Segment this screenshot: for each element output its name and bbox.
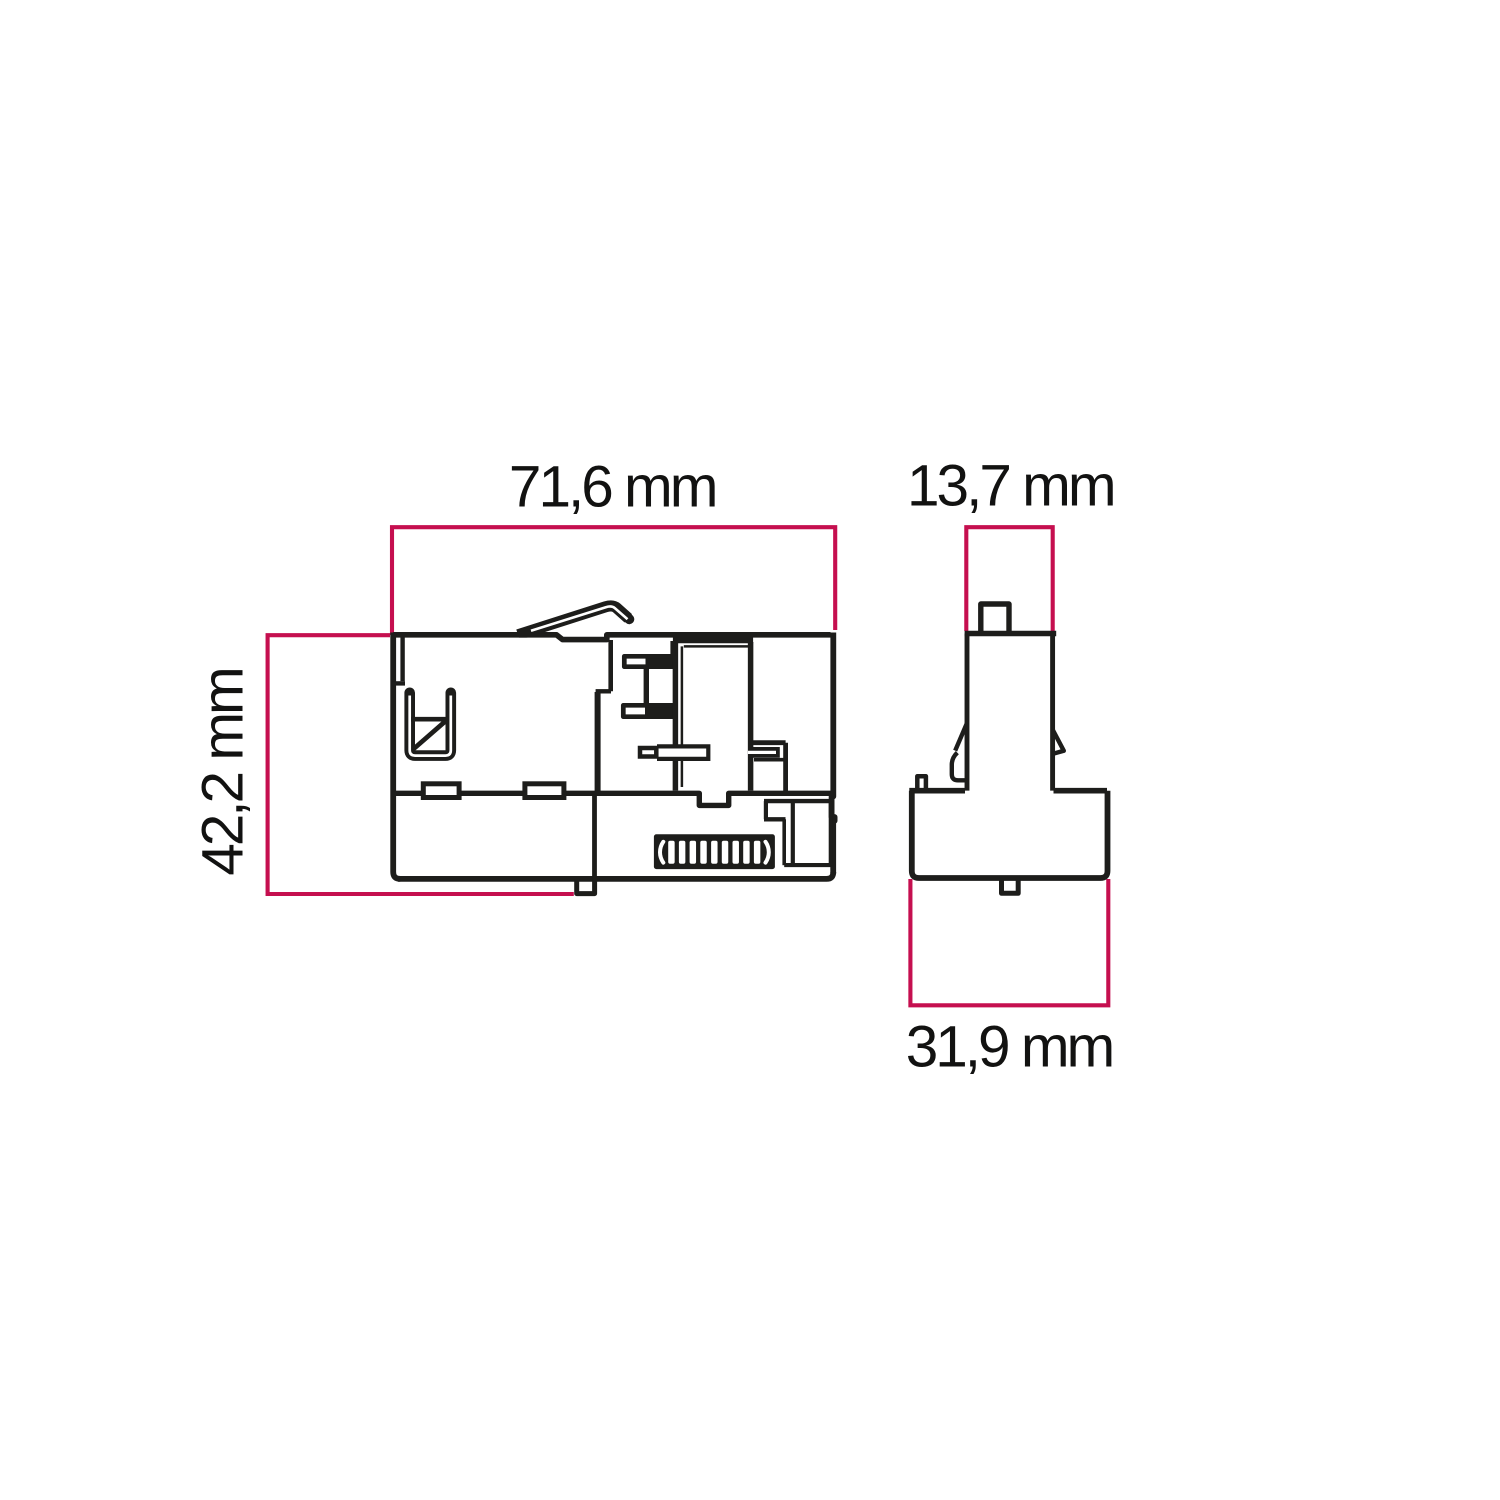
svg-text:31,9 mm: 31,9 mm	[906, 1015, 1113, 1080]
svg-text:13,7 mm: 13,7 mm	[907, 454, 1114, 519]
svg-text:42,2 mm: 42,2 mm	[191, 669, 256, 876]
svg-text:71,6 mm: 71,6 mm	[509, 455, 716, 520]
